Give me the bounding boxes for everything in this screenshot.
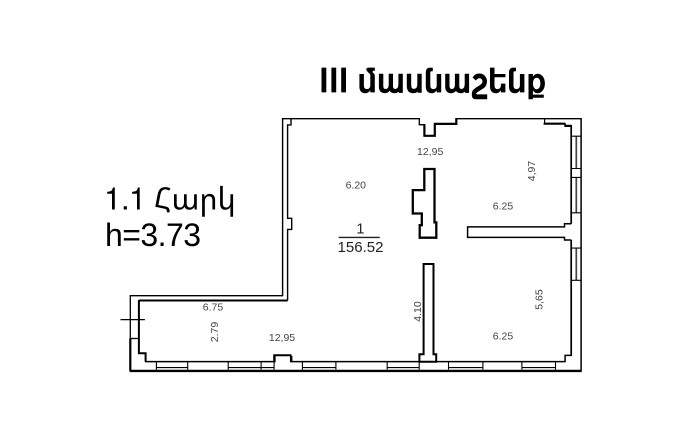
svg-text:6.25: 6.25: [493, 200, 514, 212]
svg-text:1: 1: [356, 222, 364, 238]
svg-text:6.75: 6.75: [203, 302, 224, 314]
svg-text:12,95: 12,95: [417, 146, 443, 158]
svg-text:5,65: 5,65: [533, 289, 545, 310]
svg-text:4.10: 4.10: [412, 301, 424, 322]
svg-text:12,95: 12,95: [269, 332, 295, 344]
svg-text:4,97: 4,97: [526, 161, 538, 182]
svg-text:6.25: 6.25: [493, 331, 514, 343]
svg-text:6.20: 6.20: [346, 179, 367, 191]
svg-text:2.79: 2.79: [209, 322, 221, 343]
svg-text:156.52: 156.52: [338, 239, 384, 256]
svg-text:h=3.73: h=3.73: [105, 217, 200, 253]
